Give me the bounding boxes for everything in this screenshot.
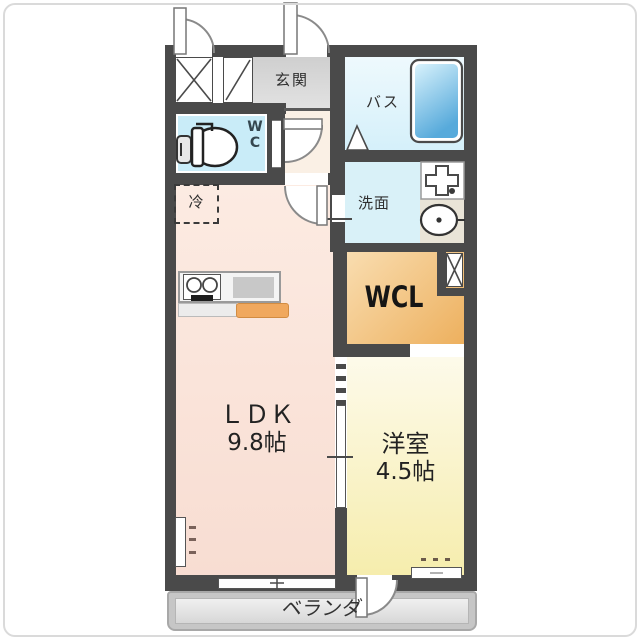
pipe-space-box [446, 253, 463, 287]
yoshitsu-window-sill [411, 567, 462, 579]
wc-label: W C [246, 119, 264, 151]
ldk-size: 9.8帖 [178, 430, 336, 456]
exterior-storage-box [175, 57, 213, 103]
ldk-floor [176, 185, 335, 575]
genkan-label: 玄関 [258, 72, 326, 89]
wall-under-closets [165, 103, 286, 114]
senmen-label: 洗面 [341, 195, 407, 212]
kitchen-lower-shelf [178, 303, 237, 317]
wall-right [464, 45, 477, 591]
genkan-step-edge [284, 108, 330, 111]
ldk-label: ＬＤＫ 9.8帖 [178, 401, 336, 456]
wall-wcl-left [333, 252, 347, 352]
wcl-label: WCL [358, 281, 430, 314]
wall-left [165, 45, 176, 591]
shoe-cabinet [223, 57, 253, 103]
stove-unit [183, 274, 221, 300]
wc-label-w: W [246, 119, 264, 135]
wall-bath-bottom [345, 150, 464, 162]
fridge-label: 冷 [181, 194, 211, 211]
floorplan-canvas: 玄関 バス W C 洗面 冷 WCL ＬＤＫ 9.8帖 洋室 4.5帖 ベランダ [0, 0, 640, 640]
entrance-door-icon [284, 3, 329, 54]
yoshitsu-size: 4.5帖 [347, 459, 464, 485]
wall-ps-bottom [437, 288, 477, 296]
wc-doorway [272, 120, 281, 168]
kitchen-sink-slab [233, 277, 274, 298]
wall-top-3 [327, 45, 477, 57]
wc-label-c: C [246, 135, 264, 151]
storage-door-icon [174, 8, 214, 54]
yoshitsu-veranda-doorway [357, 575, 392, 591]
divider-opening-dashed [336, 357, 346, 405]
hallway-floor [284, 109, 330, 173]
ldk-veranda-window [218, 578, 336, 589]
yoshitsu-name: 洋室 [347, 431, 464, 459]
ldk-name: ＬＤＫ [178, 401, 336, 430]
senmen-door-tick [326, 218, 352, 220]
kitchen-counter-accent [236, 303, 289, 318]
wall-senmen-bottom [330, 243, 477, 252]
sink-zone [420, 199, 464, 243]
wall-divider-bottom [335, 508, 347, 575]
wall-top-2 [212, 45, 286, 57]
bath-label: バス [350, 94, 416, 111]
ldk-side-window [175, 517, 186, 567]
wall-ldk-top-2 [328, 173, 345, 185]
yoshitsu-label: 洋室 4.5帖 [347, 431, 464, 485]
wall-ps-left [437, 252, 446, 288]
veranda-label: ベランダ [165, 597, 478, 620]
